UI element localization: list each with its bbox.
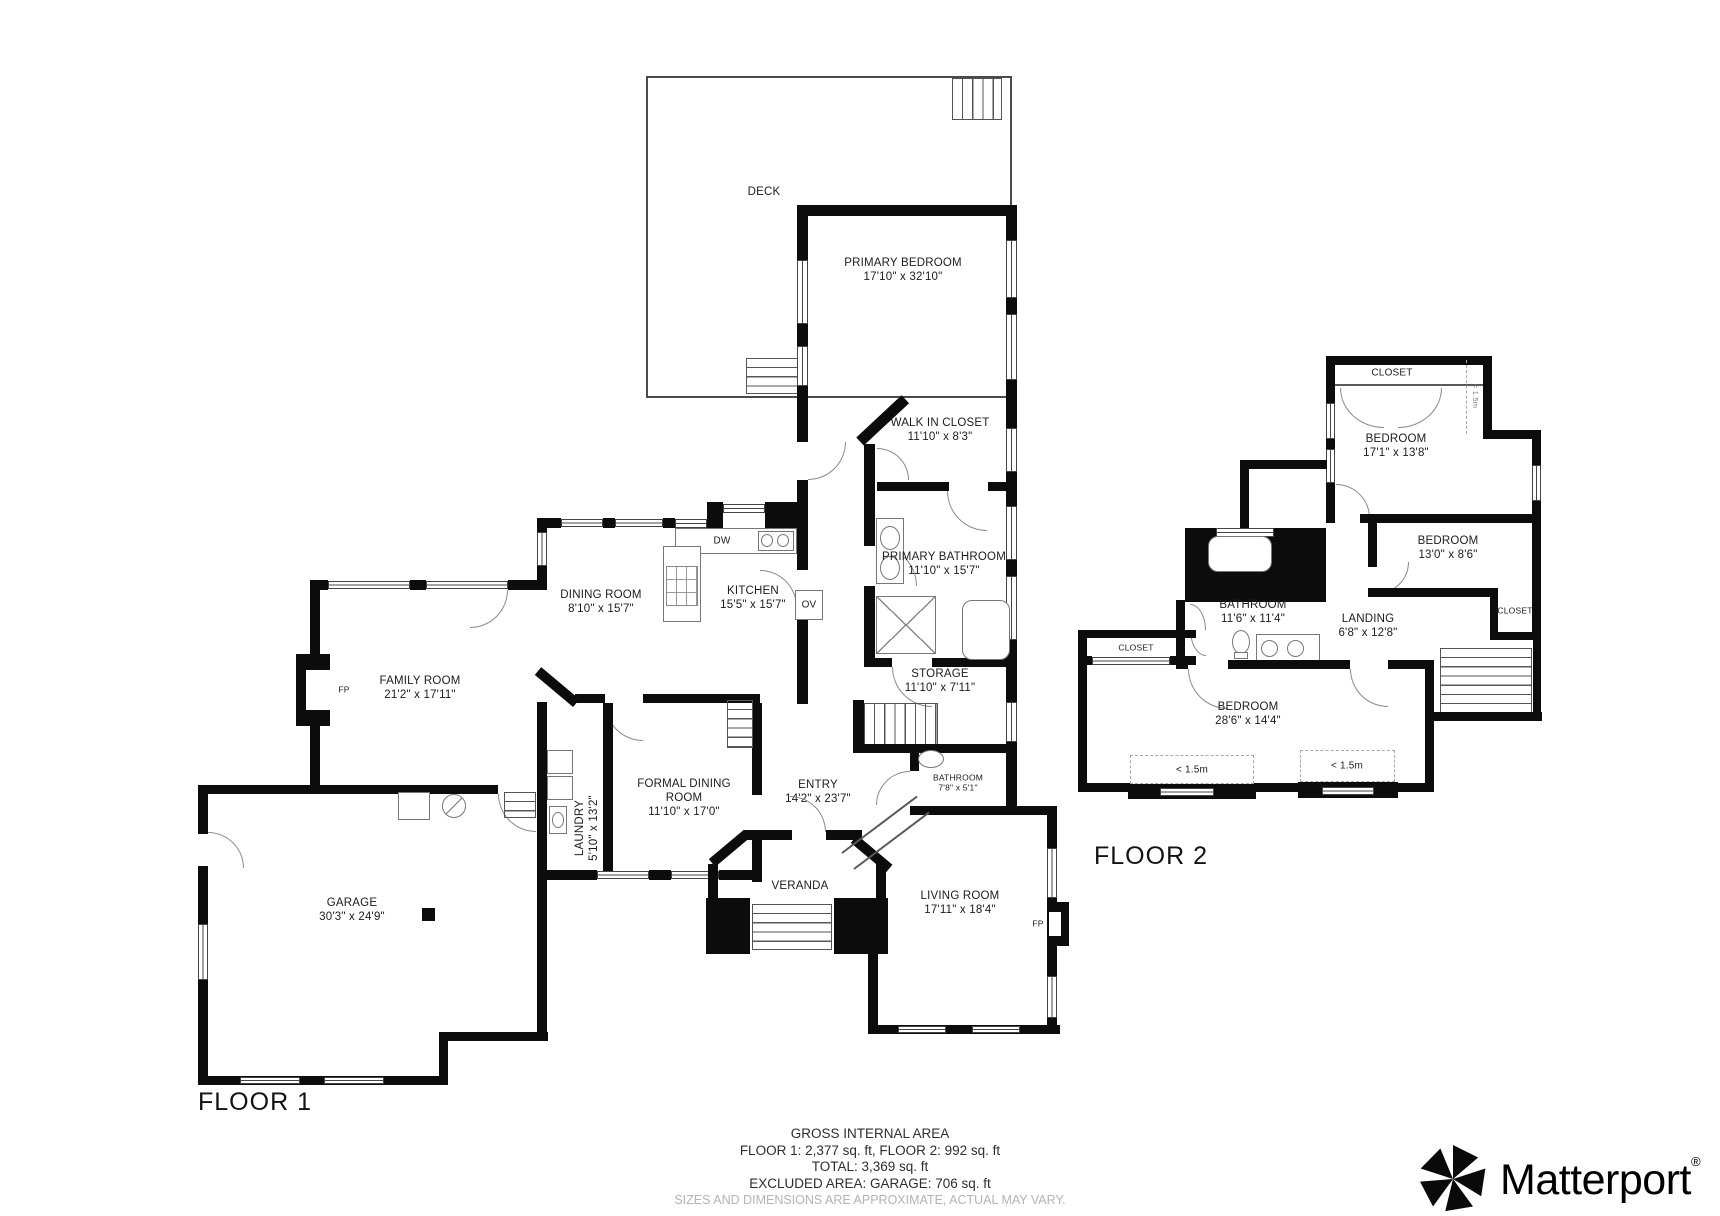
fireplace-label: FP: [338, 685, 349, 695]
decorative-shape: 13'0" x 8'6": [1418, 548, 1479, 562]
window: [1006, 428, 1017, 472]
total-area: TOTAL: 3,369 sq. ft: [570, 1159, 1170, 1176]
decorative-shape: < 1.5m: [1176, 765, 1208, 776]
wall-segment: [1532, 439, 1541, 465]
matterport-icon: [1416, 1142, 1490, 1216]
stairs-f2: [1440, 648, 1532, 716]
door-arc: [1398, 388, 1442, 428]
decorative-shape: STORAGE: [911, 668, 968, 680]
room-label-bathroom-small: BATHROOM7'8" x 5'1": [933, 774, 983, 793]
wall-segment: [868, 898, 878, 1034]
sink-icon: [1261, 640, 1278, 657]
wall-segment: [198, 1076, 448, 1085]
wall-segment: [1047, 806, 1057, 848]
window: [797, 260, 808, 324]
decorative-shape: FAMILY ROOM: [379, 675, 460, 687]
window: [1047, 848, 1057, 898]
deck-stairs-top: [952, 78, 1002, 120]
dryer-icon: [547, 776, 573, 800]
wall-segment: [198, 980, 208, 1085]
room-label-storage: STORAGE11'10" x 7'11": [905, 667, 976, 695]
sink-icon: [1287, 640, 1304, 657]
wall-segment: [1006, 560, 1017, 576]
decorative-shape: VERANDA: [772, 880, 829, 892]
room-label-bedroom-wide: BEDROOM28'6" x 14'4": [1215, 700, 1281, 728]
mudroom-steps: [504, 792, 536, 818]
wall-segment: [663, 518, 675, 528]
wall-segment: [603, 703, 613, 871]
decorative-shape: PRIMARY BATHROOM: [882, 551, 1006, 563]
door-arc: [876, 771, 910, 805]
wall-segment: [864, 444, 875, 482]
room-label-laundry: LAUNDRY5'10" x 13'2": [573, 795, 601, 861]
clearance-label-left: < 1.5m: [1176, 765, 1208, 776]
sink-icon: [880, 526, 900, 550]
wall-segment: [709, 830, 751, 867]
wall-segment: [765, 502, 797, 528]
clearance-label-side: < 1.5m: [1468, 384, 1482, 408]
wall-segment: [649, 870, 671, 880]
wall-segment: [537, 880, 547, 1041]
decorative-shape: 21'2" x 17'11": [379, 688, 460, 702]
sink-icon: [552, 812, 564, 828]
clearance-label-right: < 1.5m: [1331, 761, 1363, 772]
wall-segment: [310, 580, 328, 590]
decorative-shape: DW: [713, 536, 730, 547]
wall-segment: [1368, 588, 1498, 597]
wall-segment: [706, 898, 750, 954]
gross-area-title: GROSS INTERNAL AREA: [570, 1126, 1170, 1143]
window: [1532, 465, 1541, 501]
wall-segment: [410, 580, 426, 590]
dishwasher-label: DW: [713, 536, 730, 547]
wall-segment: [1006, 298, 1017, 314]
room-label-closet-top: CLOSET: [1371, 368, 1412, 379]
door-arc: [1336, 484, 1370, 518]
window: [797, 346, 808, 386]
window: [675, 519, 707, 528]
room-label-primary-bedroom: PRIMARY BEDROOM17'10" x 32'10": [844, 256, 962, 284]
decorative-shape: FP: [1032, 918, 1043, 928]
wall-segment: [1078, 630, 1196, 638]
wall-segment: [1006, 216, 1017, 240]
room-label-dining-room: DINING ROOM8'10" x 15'7": [560, 588, 641, 616]
wall-segment: [1326, 660, 1350, 669]
floor2-caption: FLOOR 2: [1094, 842, 1208, 871]
decorative-shape: CLOSET: [1118, 642, 1153, 652]
wall-segment: [1254, 783, 1300, 792]
decorative-shape: 11'10" x 17'0": [620, 805, 748, 819]
decorative-shape: 11'10" x 15'7": [882, 564, 1006, 578]
decorative-shape: 30'3" x 24'9": [319, 910, 385, 924]
room-label-living-room: LIVING ROOM17'11" x 18'4": [921, 889, 1000, 917]
support-post: [422, 908, 435, 921]
sink-icon: [761, 534, 773, 547]
wall-segment: [1483, 365, 1492, 439]
decorative-shape: BEDROOM: [1366, 433, 1427, 445]
floorplan-canvas: DECK PRIMARY BEDROOM17'10" x 32'10" WALK…: [0, 0, 1720, 1216]
wall-segment: [1078, 656, 1092, 665]
wall-segment: [1047, 1018, 1057, 1034]
room-label-kitchen: KITCHEN15'5" x 15'7": [720, 584, 786, 612]
window: [1326, 449, 1335, 483]
decorative-shape: Matterport: [1500, 1156, 1691, 1204]
decorative-shape: 17'10" x 32'10": [844, 270, 962, 284]
deck-railing: [646, 76, 1012, 398]
decorative-shape: 17'11" x 18'4": [921, 903, 1000, 917]
room-label-bedroom-small: BEDROOM13'0" x 8'6": [1418, 534, 1479, 562]
wall-segment: [448, 1032, 548, 1041]
wall-segment: [719, 870, 762, 880]
room-label-primary-bathroom: PRIMARY BATHROOM11'10" x 15'7": [882, 550, 1006, 578]
window: [898, 1026, 946, 1033]
floor-areas: FLOOR 1: 2,377 sq. ft, FLOOR 2: 992 sq. …: [570, 1143, 1170, 1160]
wall-segment: [834, 898, 888, 954]
room-label-veranda: VERANDA: [772, 879, 829, 893]
wall-segment: [877, 482, 949, 491]
veranda-steps: [752, 904, 832, 950]
room-label-bedroom-large: BEDROOM17'1" x 13'8": [1363, 432, 1429, 460]
decorative-shape: < 1.5m: [1471, 384, 1480, 408]
wall-segment: [744, 830, 792, 840]
door-arc: [877, 448, 909, 480]
decorative-shape: FORMAL DINING ROOM: [637, 778, 731, 804]
wall-segment: [198, 866, 208, 924]
wall-segment: [1425, 660, 1434, 791]
floor1-caption: FLOOR 1: [198, 1088, 312, 1117]
wall-segment: [797, 324, 808, 346]
room-label-family-room: FAMILY ROOM21'2" x 17'11": [379, 674, 460, 702]
decorative-shape: CLOSET: [1497, 605, 1532, 615]
window: [1160, 788, 1214, 796]
room-label-walk-in-closet: WALK IN CLOSET11'10" x 8'3": [891, 416, 990, 444]
stove-icon: [666, 566, 698, 606]
clearance-line: [1466, 360, 1467, 434]
window: [1322, 787, 1374, 795]
decorative-shape: OV: [802, 600, 817, 611]
matterport-wordmark: Matterport®: [1500, 1154, 1700, 1205]
wall-segment: [797, 607, 808, 704]
decorative-shape: CLOSET: [1371, 368, 1412, 379]
bathtub-icon: [962, 600, 1010, 660]
room-label-closet-right: CLOSET: [1497, 606, 1532, 616]
window: [1326, 403, 1335, 439]
decorative-shape: 15'5" x 15'7": [720, 598, 786, 612]
wall-segment: [310, 726, 320, 786]
fireplace-label: FP: [1032, 919, 1043, 929]
decorative-shape: PRIMARY BEDROOM: [844, 257, 962, 269]
wall-segment: [1360, 514, 1541, 523]
window: [198, 924, 208, 980]
decorative-shape: 17'1" x 13'8": [1363, 446, 1429, 460]
wall-segment: [310, 590, 320, 654]
wall-segment: [1170, 656, 1196, 665]
wall-segment: [1228, 660, 1328, 669]
wall-segment: [1532, 522, 1541, 640]
decorative-shape: 11'6" x 11'4": [1219, 612, 1286, 626]
wall-segment: [1326, 483, 1335, 523]
wall-segment: [1078, 783, 1130, 792]
wall-segment: [1006, 380, 1017, 402]
wall-segment: [1326, 439, 1335, 449]
wall-segment: [864, 658, 892, 667]
window: [324, 1077, 384, 1084]
wall-segment: [797, 216, 808, 260]
deck-stairs-bottom: [746, 358, 802, 394]
wall-segment: [988, 482, 1017, 491]
decorative-shape: 6'8" x 12'8": [1338, 626, 1397, 640]
wall-segment: [910, 806, 1056, 815]
decorative-shape: ENTRY: [798, 779, 838, 791]
wall-segment: [535, 667, 580, 707]
door-arc: [1190, 604, 1206, 630]
decorative-shape: 7'8" x 5'1": [933, 783, 983, 793]
decorative-shape: 8'10" x 15'7": [560, 602, 641, 616]
decorative-shape: 11'10" x 7'11": [905, 681, 976, 695]
window: [537, 532, 547, 566]
wall-segment: [797, 402, 808, 442]
registered-mark: ®: [1691, 1154, 1700, 1169]
window: [972, 1026, 1020, 1033]
door-arc: [208, 832, 244, 868]
window: [426, 581, 508, 589]
wall-segment: [537, 870, 597, 880]
decorative-shape: LIVING ROOM: [921, 890, 1000, 902]
wall-segment: [603, 518, 615, 528]
wall-segment: [1326, 393, 1335, 403]
wall-segment: [198, 794, 208, 834]
wall-segment: [864, 586, 875, 658]
decorative-shape: KITCHEN: [727, 585, 779, 597]
wall-segment: [1326, 365, 1335, 393]
wall-segment: [508, 580, 540, 590]
door-arc: [470, 590, 508, 628]
decorative-shape: BATHROOM: [1219, 599, 1286, 611]
bathtub-icon: [1208, 536, 1272, 572]
window: [615, 519, 663, 527]
wall-segment: [1533, 640, 1541, 721]
decorative-shape: WALK IN CLOSET: [891, 417, 990, 429]
wall-segment: [1396, 783, 1434, 792]
toilet-tank: [1234, 652, 1248, 659]
decorative-shape: 5'10" x 13'2": [587, 795, 601, 861]
window: [597, 871, 649, 879]
decorative-shape: 28'6" x 14'4": [1215, 714, 1281, 728]
wall-segment: [707, 502, 723, 528]
oven-label: OV: [802, 600, 817, 611]
stairs-down: [864, 703, 938, 745]
wall-segment: [1434, 712, 1542, 721]
water-heater-icon: [398, 792, 430, 820]
door-arc: [808, 442, 846, 480]
wall-segment: [1326, 356, 1492, 365]
window: [1006, 506, 1017, 560]
wall-segment: [1047, 946, 1057, 976]
wall-segment: [198, 785, 498, 794]
window: [723, 504, 765, 513]
excluded-area: EXCLUDED AREA: GARAGE: 706 sq. ft: [570, 1176, 1170, 1193]
window: [1047, 976, 1057, 1018]
wall-segment: [1368, 523, 1377, 567]
decorative-shape: DINING ROOM: [560, 589, 641, 601]
wall-segment: [797, 480, 808, 570]
wall-segment: [868, 1025, 1060, 1034]
door-arc: [1350, 669, 1388, 707]
decorative-shape: [1416, 1145, 1490, 1216]
entry-stairs-up: [727, 700, 753, 748]
wall-segment: [575, 694, 605, 703]
wall-segment: [1240, 460, 1249, 530]
decorative-shape: DECK: [748, 186, 781, 198]
fireplace-niche: [306, 670, 330, 710]
shower-icon: [876, 596, 936, 654]
window: [1006, 702, 1017, 742]
decorative-shape: BEDROOM: [1418, 535, 1479, 547]
wall-segment: [864, 482, 875, 546]
wall-segment: [537, 702, 547, 880]
wall-segment: [1247, 460, 1327, 469]
wall-segment: [1006, 402, 1017, 428]
window: [561, 519, 603, 527]
wall-segment: [1483, 430, 1541, 439]
room-label-closet-left: CLOSET: [1118, 643, 1153, 653]
area-summary: GROSS INTERNAL AREA FLOOR 1: 2,377 sq. f…: [570, 1126, 1170, 1209]
sink-icon: [918, 750, 944, 768]
washer-icon: [547, 750, 573, 774]
matterport-logo: Matterport®: [1416, 1142, 1700, 1216]
wall-segment: [876, 862, 886, 902]
window: [1006, 314, 1017, 380]
room-label-formal-dining: FORMAL DINING ROOM11'10" x 17'0": [620, 777, 748, 819]
door-arc: [947, 491, 987, 531]
window: [1092, 657, 1170, 665]
window: [240, 1077, 300, 1084]
decorative-shape: < 1.5m: [1331, 761, 1363, 772]
decorative-shape: LANDING: [1342, 613, 1395, 625]
window: [328, 581, 410, 589]
room-label-landing: LANDING6'8" x 12'8": [1338, 612, 1397, 640]
decorative-shape: BATHROOM: [933, 773, 983, 783]
decorative-shape: LAUNDRY: [574, 800, 586, 856]
guide-line: [1335, 384, 1483, 386]
wall-segment: [439, 1032, 448, 1085]
wall-segment: [797, 205, 1017, 216]
window: [1006, 240, 1017, 298]
decorative-shape: 11'10" x 8'3": [891, 430, 990, 444]
room-label-deck: DECK: [748, 185, 781, 199]
door-arc: [1340, 388, 1384, 428]
sink-icon: [777, 534, 789, 547]
room-label-garage: GARAGE30'3" x 24'9": [319, 896, 385, 924]
decorative-shape: BEDROOM: [1218, 701, 1279, 713]
decorative-shape: GARAGE: [327, 897, 377, 909]
wall-segment: [797, 386, 808, 402]
disclaimer: SIZES AND DIMENSIONS ARE APPROXIMATE, AC…: [570, 1192, 1170, 1209]
wall-segment: [752, 703, 762, 795]
toilet-icon: [1232, 630, 1250, 654]
room-label-bathroom-f2: BATHROOM11'6" x 11'4": [1219, 598, 1286, 626]
fireplace-niche: [1049, 912, 1061, 936]
water-softener-icon: [442, 794, 466, 818]
wall-segment: [537, 518, 547, 532]
decorative-shape: FP: [338, 684, 349, 694]
